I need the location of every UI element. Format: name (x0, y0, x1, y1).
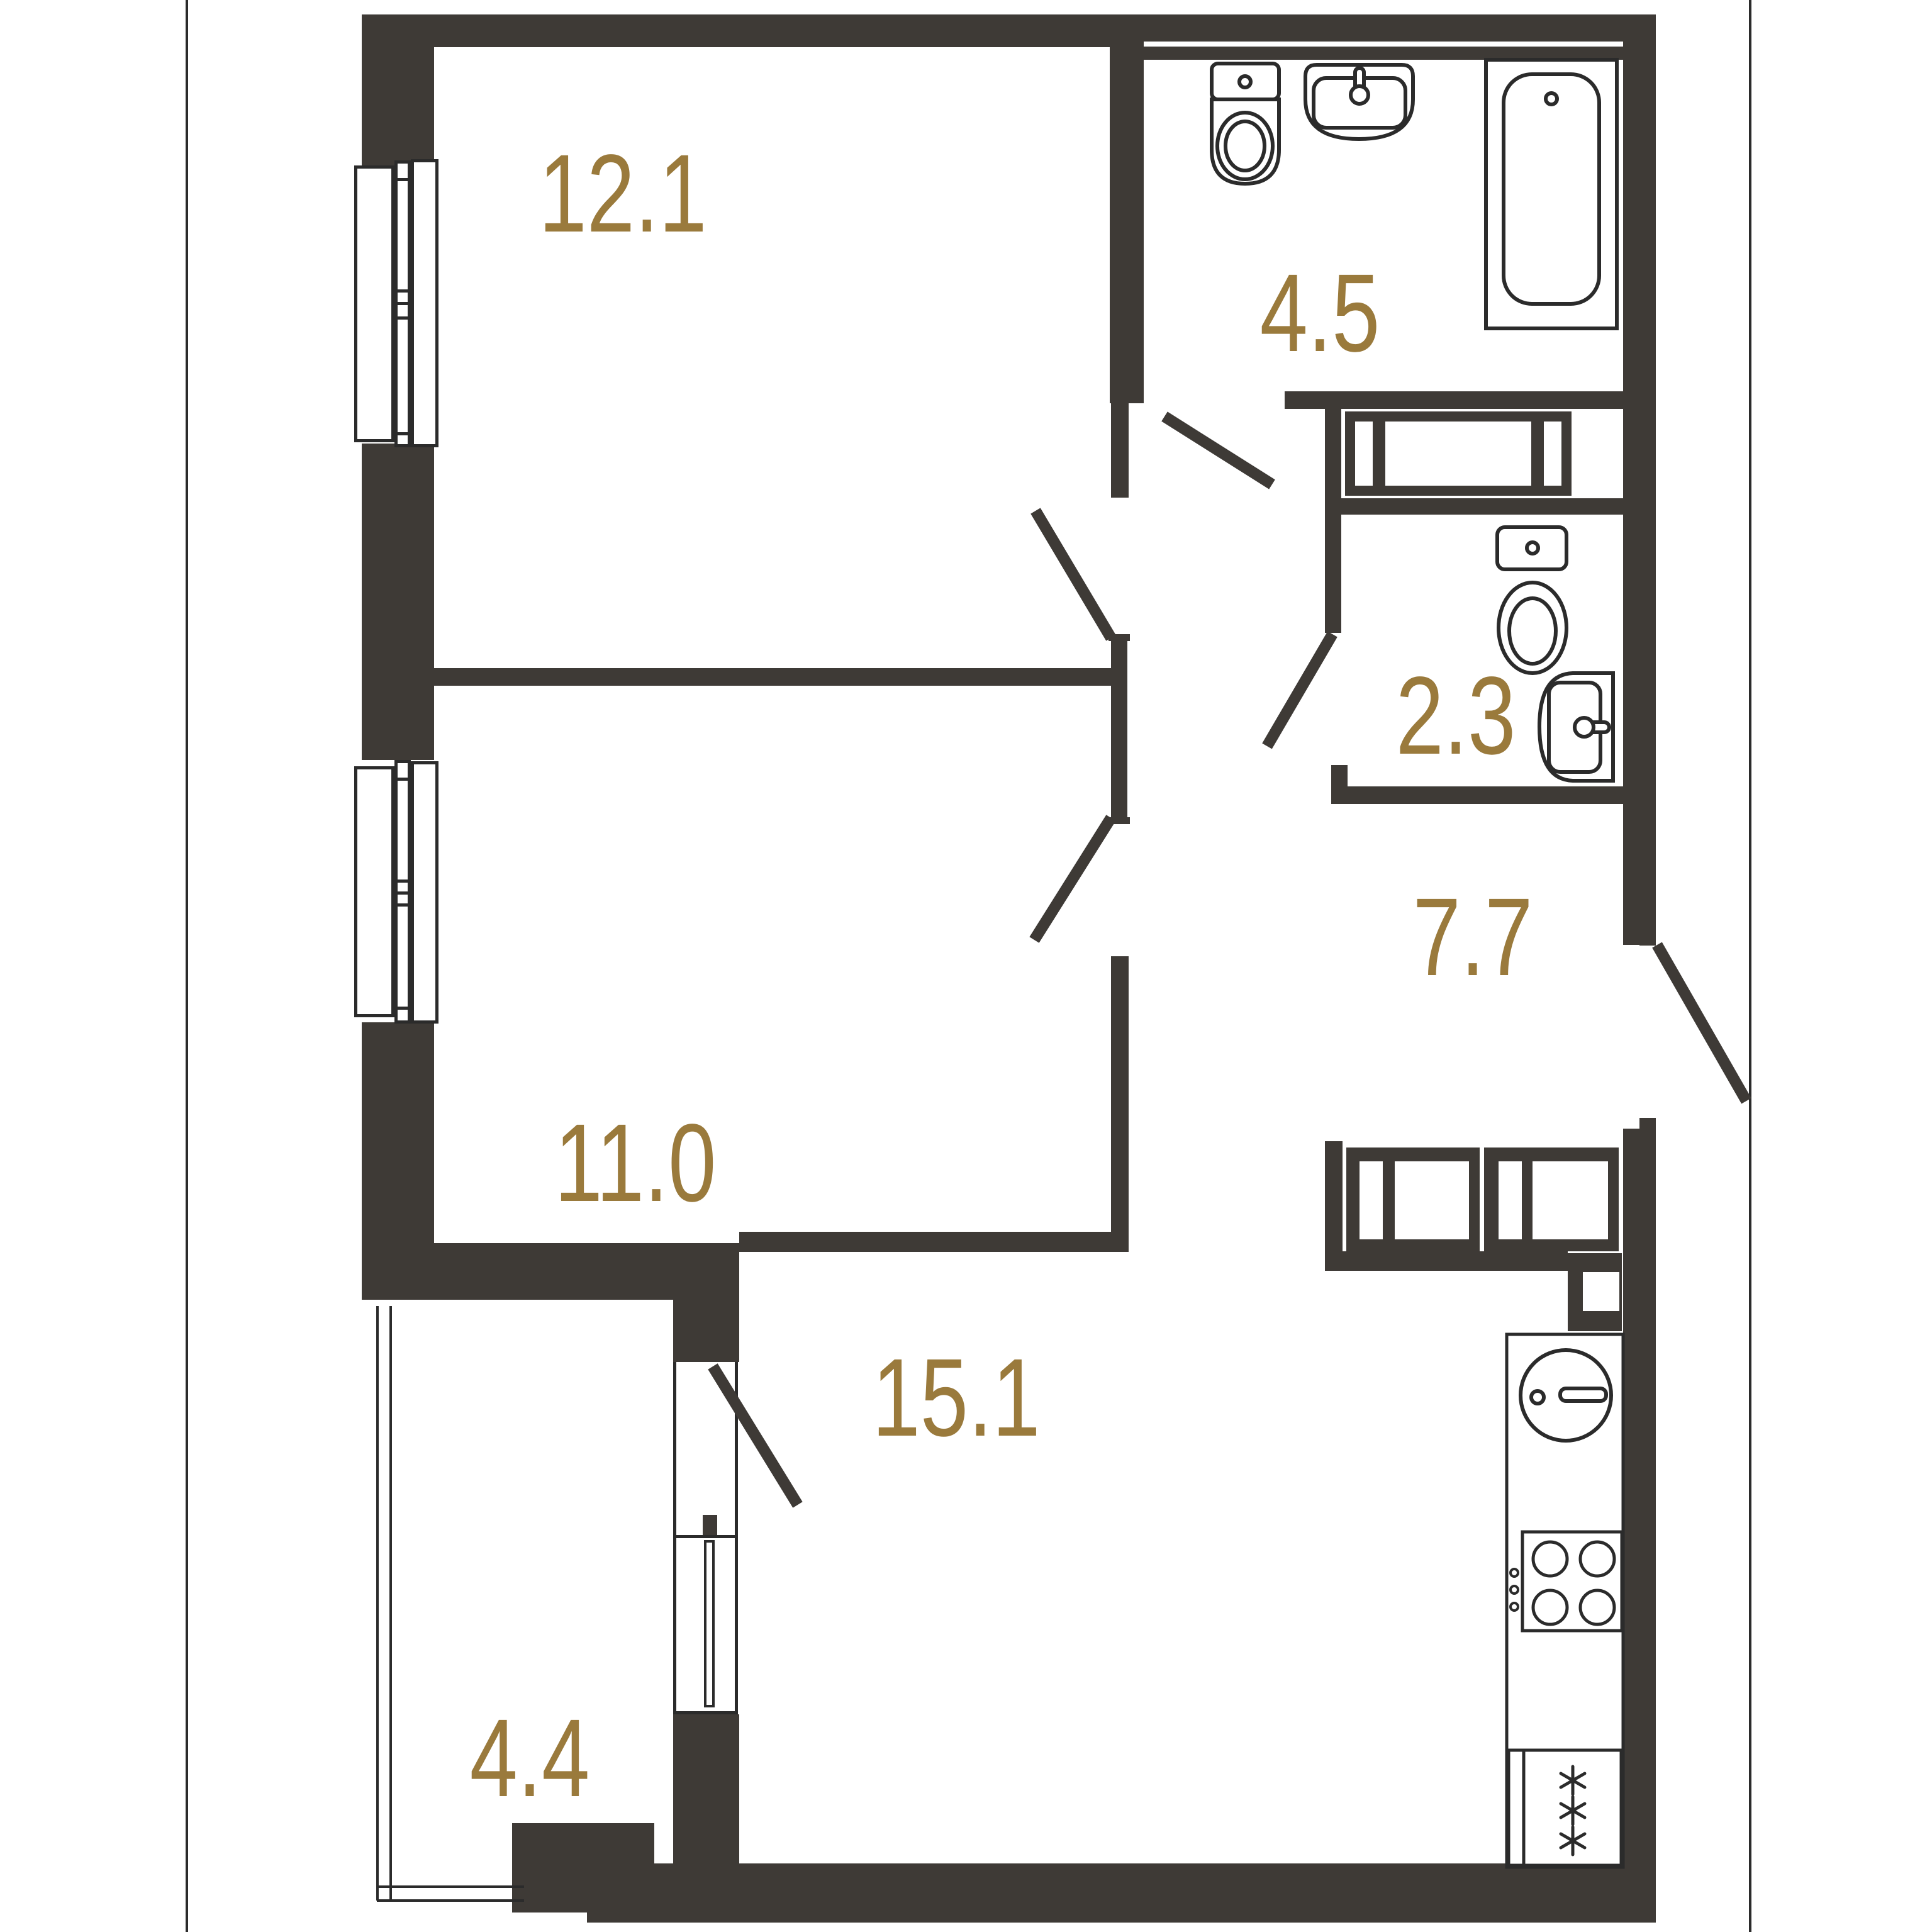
room-label-bathroom: 4.5 (1260, 250, 1380, 377)
door-leaf-living (1036, 511, 1111, 638)
kitchen-sink-icon (1521, 1350, 1611, 1441)
bathtub-icon (1486, 60, 1617, 328)
toilet-icon (1497, 527, 1566, 673)
room-label-bedroom: 11.0 (555, 1100, 717, 1227)
floor-plan: 12.1 4.5 2.3 7.7 11.0 15.1 4.4 (0, 0, 1932, 1932)
stove-icon (1510, 1532, 1622, 1631)
door-leaf-wc (1267, 634, 1332, 746)
door-leaf-balcony (713, 1366, 798, 1505)
wall-top-white-strip (1144, 42, 1623, 47)
kitchen-corner-block-inner (1583, 1272, 1619, 1311)
washbasin-icon (1539, 673, 1613, 781)
room-label-kitchen: 15.1 (872, 1334, 1040, 1461)
door-leaf-bedroom (1034, 818, 1111, 940)
washbasin-icon (1305, 65, 1413, 139)
room-label-hallway: 7.7 (1413, 874, 1533, 1001)
room-label-wc: 2.3 (1396, 652, 1516, 779)
door-leaf-entrance (1657, 945, 1746, 1101)
room-label-living: 12.1 (539, 130, 706, 257)
toilet-icon (1212, 64, 1279, 184)
door-leaf-bathroom (1164, 416, 1272, 484)
room-label-balcony: 4.4 (470, 1695, 590, 1822)
fixtures-layer (0, 0, 1932, 1932)
